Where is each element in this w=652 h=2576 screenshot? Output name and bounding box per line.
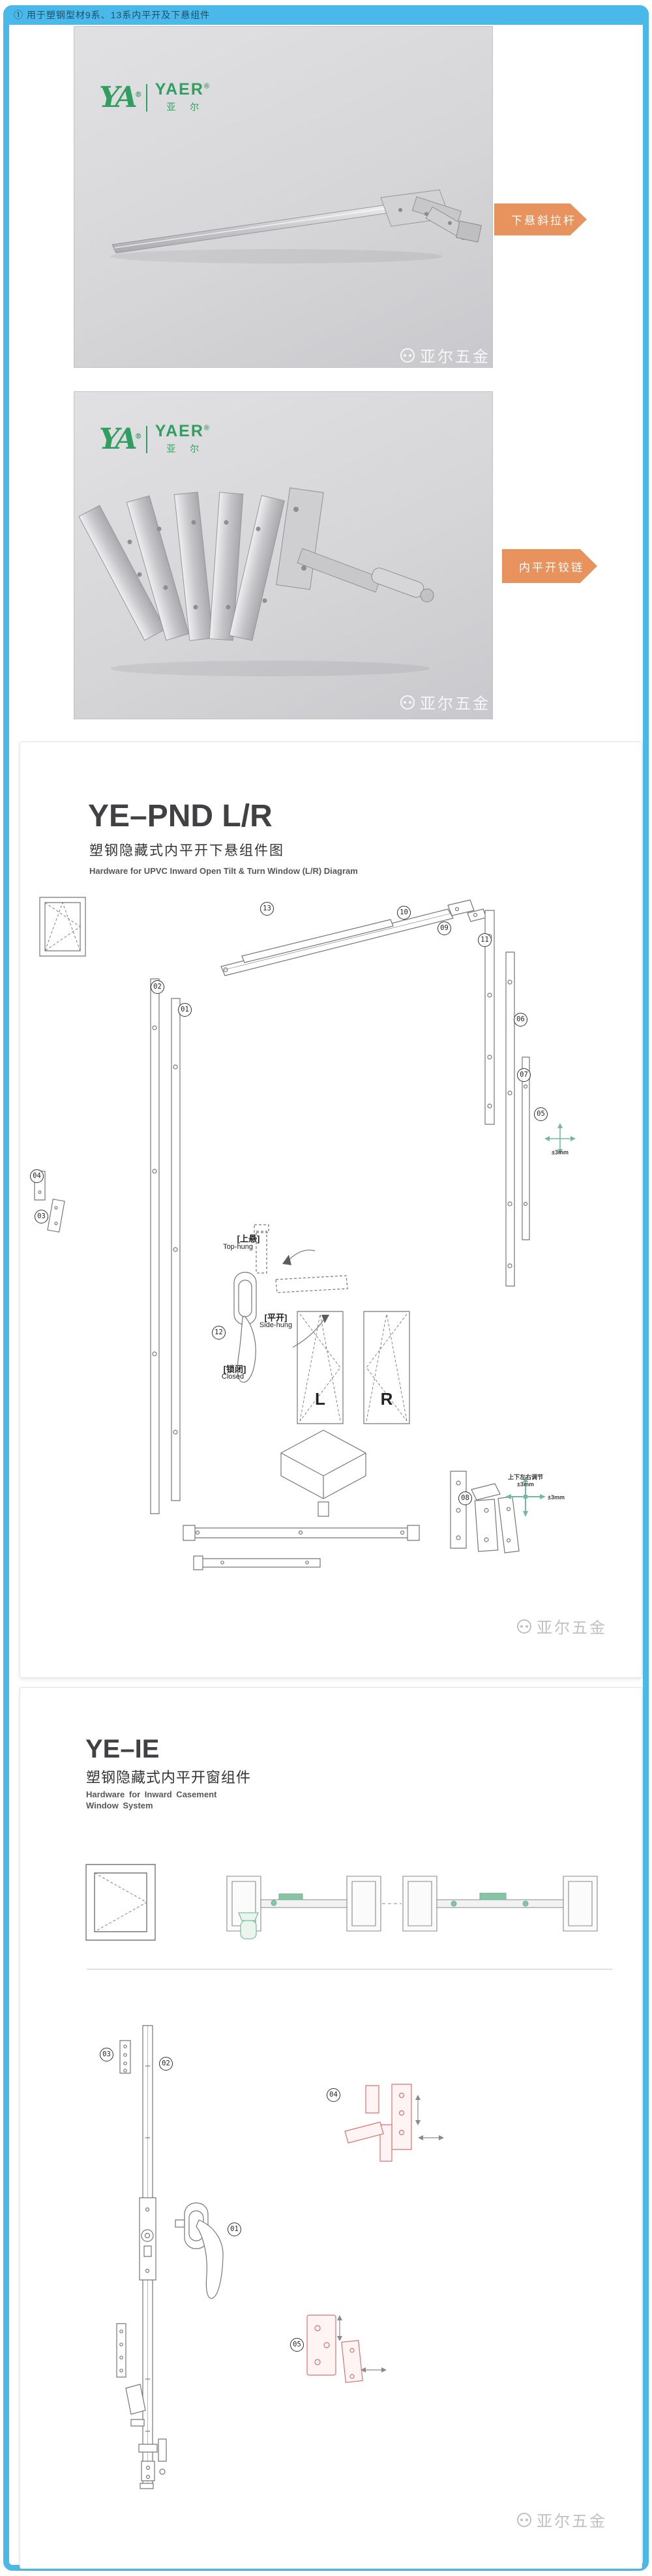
- callout: 02: [151, 980, 164, 994]
- callout: 11: [478, 933, 492, 947]
- left-espag-bars-drawing: [151, 979, 180, 1514]
- striker-plate-drawing: [120, 2041, 130, 2073]
- right-espag-bars-drawing: [485, 910, 529, 1286]
- callout: 03: [35, 1210, 48, 1223]
- top-note-bar: ① 用于塑钢型材9系、13系内平开及下悬组件: [3, 5, 649, 25]
- window-symbol-icon: [40, 897, 85, 956]
- section-ye-pnd: YE–PND L/R 塑钢隐藏式内平开下悬组件图 Hardware for UP…: [20, 741, 642, 1678]
- callout: 01: [228, 2223, 241, 2236]
- callout: 04: [30, 1169, 44, 1183]
- callout: 01: [178, 1003, 192, 1017]
- brand-monogram: YA®: [99, 425, 140, 454]
- bottom-bars-drawing: [183, 1525, 419, 1570]
- label-side-hung-en: Side-hung: [259, 1321, 292, 1329]
- chat-face-icon: [517, 2513, 531, 2527]
- logo-divider: [146, 84, 147, 112]
- brand-monogram: YA®: [99, 83, 140, 112]
- logo-divider: [146, 426, 147, 453]
- section-ye-ie: YE–IE 塑钢隐藏式内平开窗组件 Hardware for Inward Ca…: [20, 1687, 642, 2569]
- subtitle-en-line2: Window System: [86, 1800, 216, 1811]
- callout: 03: [100, 2048, 113, 2061]
- brand-logo: YA® YAER® 亚 尔: [99, 423, 211, 455]
- adjust-arrows-icon: [415, 2095, 444, 2140]
- section-subtitle-cn: 塑钢隐藏式内平开窗组件: [86, 1766, 251, 1787]
- callout: 08: [458, 1491, 472, 1505]
- callout: 05: [290, 2338, 304, 2352]
- brand-name: YAER®: [155, 423, 211, 440]
- section-title: YE–PND L/R: [88, 801, 273, 832]
- top-hinge-red-drawing: [345, 2084, 411, 2161]
- tilt-stay-photo-art: [74, 27, 494, 368]
- subtitle-en-line1: Hardware for Inward Casement: [86, 1789, 216, 1800]
- callout: 06: [514, 1013, 527, 1026]
- label-right-window: R: [381, 1389, 393, 1409]
- section-subtitle-en: Hardware for Inward Casement Window Syst…: [86, 1789, 216, 1811]
- handle-drawing: [175, 2203, 223, 2298]
- chat-face-icon: [400, 695, 415, 710]
- watermark: 亚尔五金: [400, 691, 490, 713]
- label-closed-en: Closed: [222, 1373, 244, 1381]
- callout: 04: [327, 2088, 340, 2102]
- brand-logo: YA® YAER® 亚 尔: [99, 82, 211, 113]
- watermark: 亚尔五金: [400, 344, 490, 367]
- profile-cross-sections-drawing: [219, 1853, 600, 1956]
- brand-name-cn: 亚 尔: [160, 442, 205, 455]
- callout: 10: [397, 906, 411, 920]
- top-note-text: ① 用于塑钢型材9系、13系内平开及下悬组件: [14, 10, 210, 20]
- label-adjust-h: ±3mm: [548, 1494, 565, 1501]
- green-handle-icon: [239, 1913, 258, 1939]
- bottom-hinge-cluster-drawing: [451, 1471, 519, 1553]
- section-divider: [87, 1969, 612, 1969]
- callout: 12: [212, 1326, 226, 1340]
- watermark: 亚尔五金: [517, 2508, 607, 2531]
- watermark: 亚尔五金: [517, 1615, 607, 1638]
- callout: 07: [517, 1068, 531, 1082]
- label-adjust-r: ±3mm: [552, 1149, 569, 1156]
- bottom-keep-parts-drawing: [117, 2324, 145, 2426]
- section-title: YE–IE: [85, 1736, 159, 1762]
- brand-name: YAER®: [155, 82, 211, 98]
- catalog-page: ① 用于塑钢型材9系、13系内平开及下悬组件 YA® YAER®: [0, 0, 652, 2576]
- corner-profile-drawing: [281, 1430, 366, 1516]
- product-photo-tilt-stay: YA® YAER® 亚 尔 亚尔五金: [74, 26, 493, 368]
- photo-tag-tilt-stay: 下悬斜拉杆: [494, 203, 587, 235]
- tilt-turn-exploded-diagram: [27, 891, 636, 1680]
- chat-face-icon: [400, 348, 415, 363]
- label-top-hung-en: Top-hung: [223, 1243, 253, 1251]
- label-adjust-v: ±3mm: [517, 1481, 534, 1488]
- window-symbol-icon: [84, 1863, 157, 1942]
- section-subtitle-en: Hardware for UPVC Inward Open Tilt & Tur…: [89, 866, 358, 876]
- chat-face-icon: [517, 1619, 531, 1634]
- callout: 05: [534, 1107, 548, 1121]
- brand-name-cn: 亚 尔: [160, 100, 205, 113]
- callout: 02: [159, 2057, 173, 2071]
- callout: 09: [437, 921, 451, 935]
- bottom-hinge-red-drawing: [307, 2315, 363, 2382]
- label-adjust-cn: 上下左右调节: [508, 1473, 543, 1481]
- photo-tag-hinge: 内平开铰链: [502, 549, 597, 583]
- section-subtitle-cn: 塑钢隐藏式内平开下悬组件图: [89, 840, 284, 860]
- callout: 13: [260, 902, 274, 916]
- product-photo-hinge: YA® YAER® 亚 尔 亚尔五金: [74, 391, 493, 719]
- label-left-window: L: [315, 1389, 325, 1409]
